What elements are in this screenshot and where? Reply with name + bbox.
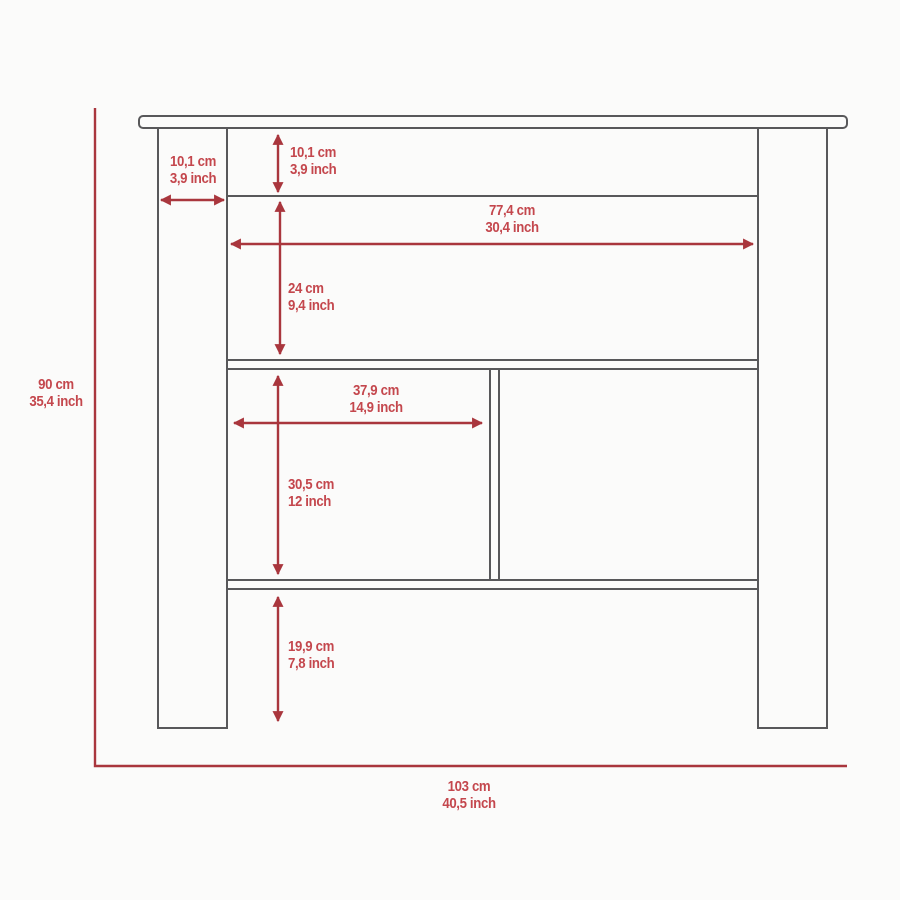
cubby-width-cm: 37,9 cm: [323, 382, 429, 399]
leg-clearance-inch: 7,8 inch: [288, 655, 334, 672]
left-leg-outline: [158, 128, 227, 728]
leg-width-label: 10,1 cm 3,9 inch: [149, 153, 237, 187]
right-leg-outline: [758, 128, 827, 728]
overall-height-cm: 90 cm: [12, 376, 100, 393]
cubby-width-inch: 14,9 inch: [323, 399, 429, 416]
cubby-height-cm: 30,5 cm: [288, 476, 334, 493]
middle-shelf-outline: [227, 360, 758, 369]
upper-shelf-height-cm: 24 cm: [288, 280, 334, 297]
bottom-shelf-outline: [227, 580, 758, 589]
leg-clearance-cm: 19,9 cm: [288, 638, 334, 655]
upper-shelf-height-label: 24 cm 9,4 inch: [288, 280, 334, 314]
center-divider-outline: [490, 369, 499, 580]
shelf-span-width-cm: 77,4 cm: [459, 202, 565, 219]
shelf-span-width-label: 77,4 cm 30,4 inch: [459, 202, 565, 236]
apron-height-cm: 10,1 cm: [290, 144, 336, 161]
overall-width-label: 103 cm 40,5 inch: [416, 778, 522, 812]
upper-shelf-height-inch: 9,4 inch: [288, 297, 334, 314]
shelf-span-width-inch: 30,4 inch: [459, 219, 565, 236]
leg-width-inch: 3,9 inch: [149, 170, 237, 187]
apron-height-label: 10,1 cm 3,9 inch: [290, 144, 336, 178]
leg-width-cm: 10,1 cm: [149, 153, 237, 170]
cubby-height-label: 30,5 cm 12 inch: [288, 476, 334, 510]
overall-width-inch: 40,5 inch: [416, 795, 522, 812]
countertop-outline: [139, 116, 847, 128]
dimension-diagram: 90 cm 35,4 inch 103 cm 40,5 inch 10,1 cm…: [0, 0, 900, 900]
apron-height-inch: 3,9 inch: [290, 161, 336, 178]
overall-height-label: 90 cm 35,4 inch: [12, 376, 100, 410]
cubby-height-inch: 12 inch: [288, 493, 334, 510]
leg-clearance-label: 19,9 cm 7,8 inch: [288, 638, 334, 672]
cubby-width-label: 37,9 cm 14,9 inch: [323, 382, 429, 416]
overall-width-cm: 103 cm: [416, 778, 522, 795]
overall-height-inch: 35,4 inch: [12, 393, 100, 410]
furniture-drawing-svg: [0, 0, 900, 900]
